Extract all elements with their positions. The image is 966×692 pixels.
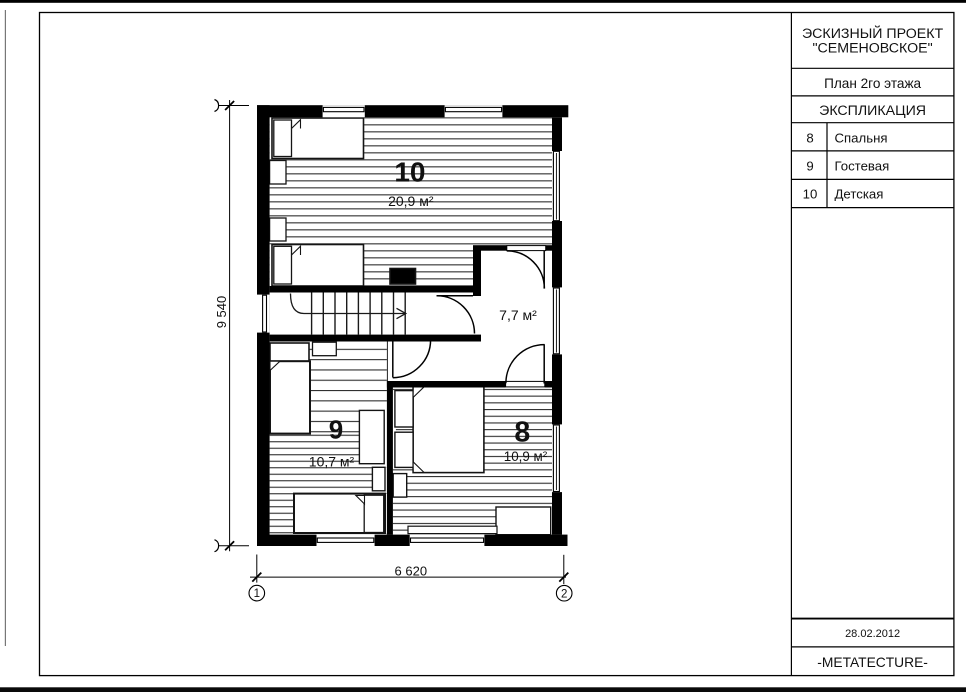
svg-text:10,9 м²: 10,9 м² (504, 449, 548, 464)
svg-text:ЭКСПЛИКАЦИЯ: ЭКСПЛИКАЦИЯ (819, 103, 926, 119)
svg-text:План 2го этажа: План 2го этажа (824, 76, 921, 91)
svg-text:28.02.2012: 28.02.2012 (845, 628, 900, 640)
svg-text:9: 9 (329, 415, 343, 445)
svg-text:1: 1 (254, 588, 260, 600)
svg-text:ЭСКИЗНЫЙ ПРОЕКТ: ЭСКИЗНЫЙ ПРОЕКТ (802, 24, 944, 42)
svg-text:10,7 м²: 10,7 м² (309, 453, 355, 469)
svg-text:-METATECTURE-: -METATECTURE- (817, 655, 928, 670)
svg-text:7,7 м²: 7,7 м² (499, 307, 537, 323)
svg-text:Спальня: Спальня (835, 130, 888, 145)
svg-text:8: 8 (514, 416, 530, 448)
svg-text:20,9 м²: 20,9 м² (388, 193, 434, 209)
svg-text:8: 8 (806, 130, 813, 145)
svg-text:Гостевая: Гостевая (835, 159, 890, 174)
svg-text:10: 10 (803, 186, 818, 201)
svg-text:Детская: Детская (835, 186, 884, 201)
svg-text:9 540: 9 540 (214, 296, 229, 329)
svg-text:10: 10 (394, 156, 425, 187)
svg-text:6 620: 6 620 (395, 564, 428, 579)
svg-text:"СЕМЕНОВСКОЕ": "СЕМЕНОВСКОЕ" (813, 40, 933, 56)
svg-text:2: 2 (561, 588, 567, 600)
svg-text:9: 9 (806, 159, 813, 174)
